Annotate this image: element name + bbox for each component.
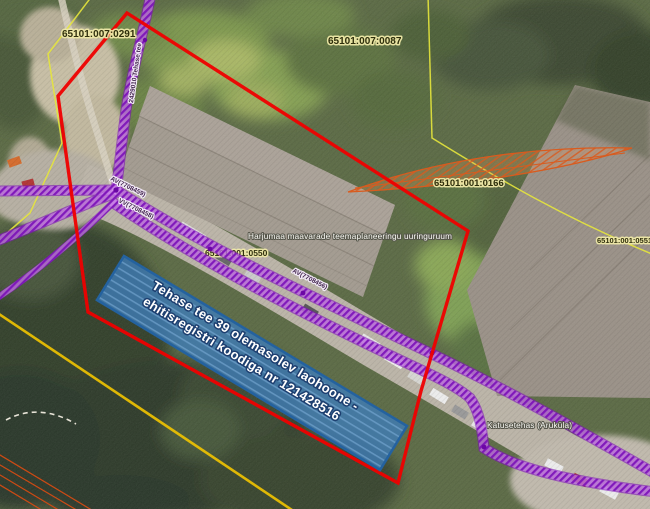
parcel-label: 65101:001:0166 — [434, 178, 504, 189]
planning-area-label: Harjumaa maavarade teemaplaneeringu uuri… — [248, 232, 452, 241]
parcel-label: 65101:001:0551 — [597, 236, 650, 245]
place-label: Katusetehas (Aruküla) — [487, 421, 572, 430]
aerial-map[interactable]: 65101:001:0550 2429010 Tehase tee AV(770… — [0, 0, 650, 509]
parcel-label: 65101:007:0087 — [328, 36, 402, 47]
aerial-map-viewport[interactable]: 65101:001:0550 2429010 Tehase tee AV(770… — [0, 0, 650, 509]
parcel-label: 65101:007:0291 — [62, 29, 136, 40]
